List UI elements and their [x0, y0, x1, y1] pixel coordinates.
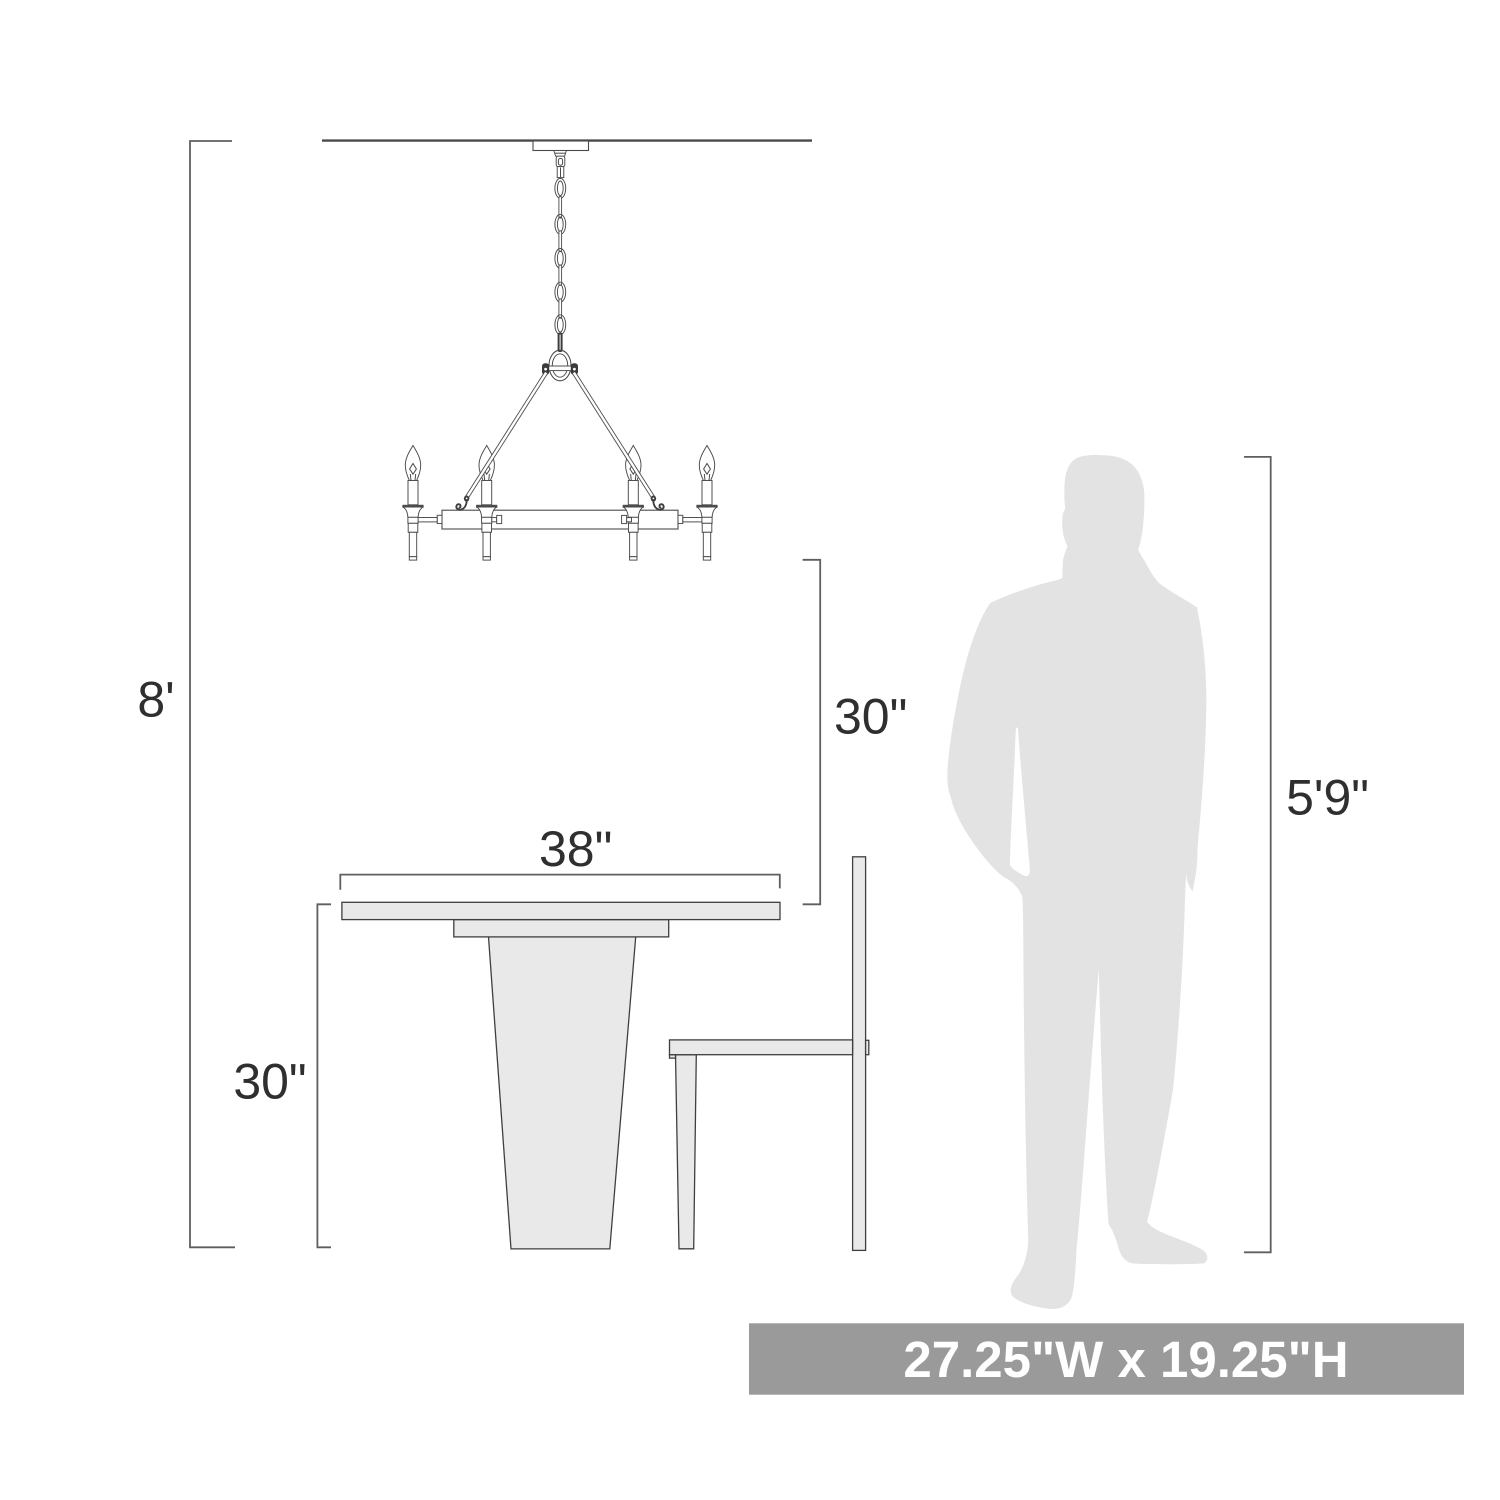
- svg-text:30": 30": [834, 689, 907, 745]
- svg-text:27.25"W x 19.25"H: 27.25"W x 19.25"H: [903, 1331, 1348, 1388]
- svg-text:8': 8': [137, 672, 174, 728]
- svg-text:5'9": 5'9": [1286, 770, 1369, 826]
- svg-text:30": 30": [233, 1054, 306, 1110]
- svg-text:38": 38": [539, 821, 612, 877]
